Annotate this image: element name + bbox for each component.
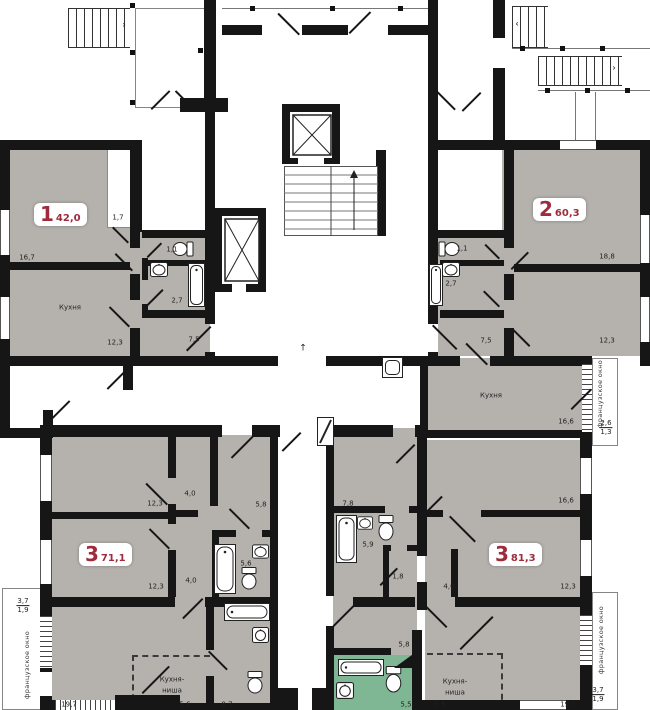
apartment-badge-1[interactable]: 1 42,0 [34, 203, 87, 226]
dim-label: 5,5 [400, 702, 411, 709]
wall [332, 104, 340, 164]
door-leaf [462, 92, 482, 112]
door-wedge-icon [392, 650, 418, 670]
marker-square [330, 6, 335, 11]
dim-label: 1,1 [456, 246, 467, 253]
room-label: ниша [445, 690, 465, 697]
wall [43, 410, 53, 438]
wall [353, 597, 415, 607]
door-leaf [436, 91, 456, 111]
dim-label: 5,6 [434, 702, 445, 709]
wall [246, 284, 266, 292]
dim-label: 1,7 [112, 215, 123, 222]
wall [222, 25, 262, 35]
stair-arrow-icon: ‹ [515, 21, 519, 30]
dim-label: 18,8 [599, 254, 615, 261]
wall [455, 597, 587, 607]
staircase-icon [284, 166, 378, 236]
elevator-shaft-icon [224, 218, 260, 282]
wall [214, 284, 232, 292]
marker-square [560, 46, 565, 51]
window [560, 140, 596, 150]
stair-arrow-icon: › [122, 22, 126, 31]
wall [333, 506, 385, 513]
french-window-label: французское окно [597, 606, 605, 674]
french-window-label: французское окно [596, 360, 604, 428]
door-leaf [282, 432, 302, 452]
walkway-line [512, 48, 650, 49]
window [580, 540, 592, 576]
wall [409, 506, 417, 513]
toilet-icon [377, 515, 395, 541]
wall [412, 700, 520, 710]
wall [115, 695, 180, 710]
bathtub-icon [336, 515, 357, 563]
apartment-number: 2 [539, 199, 553, 219]
sink-icon [150, 262, 168, 277]
marker-square [130, 3, 135, 8]
wall [130, 140, 142, 232]
walkway-line [538, 90, 650, 91]
sink-icon [357, 516, 373, 530]
duct-icon [382, 357, 403, 378]
wall [282, 158, 298, 164]
wall [333, 648, 391, 655]
wall [493, 0, 505, 38]
wall [168, 436, 176, 478]
bathtub-icon [429, 264, 443, 306]
wall [142, 310, 206, 318]
wall [417, 425, 427, 556]
window [40, 455, 52, 501]
wall [388, 25, 428, 35]
wall [427, 510, 443, 517]
sink-icon [252, 544, 269, 559]
electrical-panel-icon [317, 417, 334, 446]
marker-square [625, 88, 630, 93]
wall [52, 512, 170, 519]
marker-square [250, 6, 255, 11]
wall [212, 530, 236, 537]
dim-label: 5,6 [240, 561, 251, 568]
sink-icon [252, 627, 269, 643]
dim-label: 7,5 [480, 338, 491, 345]
wall [481, 510, 587, 517]
dim-label: 12,3 [148, 584, 164, 591]
apartment-badge-3-left[interactable]: 3 71,1 [79, 543, 132, 566]
elevator-shaft-icon [292, 114, 332, 156]
wall [205, 110, 215, 324]
room-label: Кухня [480, 393, 502, 400]
dim-label: 12,3 [560, 584, 576, 591]
window [580, 458, 592, 494]
french-window-label: французское окно [23, 631, 31, 699]
wall [302, 25, 348, 35]
balcony-area-fraction: 3,71,9 [591, 686, 604, 704]
toilet-icon [384, 666, 403, 693]
window [640, 215, 650, 263]
wall [0, 356, 10, 436]
wall [312, 688, 334, 710]
toilet-icon [240, 567, 258, 590]
window [0, 210, 10, 255]
window [0, 297, 10, 339]
wall [428, 0, 438, 150]
dim-label: 4,0 [443, 584, 454, 591]
wall [582, 356, 592, 364]
wall [142, 258, 148, 280]
apartment-number: 3 [85, 544, 99, 564]
room-label: ниша [162, 688, 182, 695]
marker-square [198, 48, 203, 53]
dim-label: 7,8 [342, 501, 353, 508]
wall [214, 208, 222, 292]
window [40, 540, 52, 584]
dim-label: 12,3 [599, 338, 615, 345]
wall [142, 230, 208, 238]
dim-label: 19,7 [560, 702, 576, 709]
bathtub-icon [224, 603, 270, 621]
wall [407, 545, 417, 551]
entry-zone-left [142, 148, 206, 232]
bathtub-icon [338, 659, 384, 676]
marker-square [545, 88, 550, 93]
marker-square [130, 100, 135, 105]
wall [504, 274, 514, 300]
wall [168, 550, 176, 597]
door-leaf [277, 13, 300, 36]
dim-label: 1,1 [166, 247, 177, 254]
dim-label: 1,8 [392, 574, 403, 581]
window [520, 700, 566, 710]
wall [130, 232, 140, 248]
entry-zone-right [438, 148, 502, 232]
apartment-number: 1 [40, 204, 54, 224]
wall [130, 328, 140, 356]
dim-label: 2,7 [445, 281, 456, 288]
wall [333, 425, 393, 437]
exterior-stairs-top-right-long [538, 56, 622, 86]
wall [204, 0, 216, 98]
wall [0, 356, 278, 366]
wall [40, 425, 222, 437]
french-window [40, 616, 52, 668]
dim-label: 16,6 [558, 498, 574, 505]
wall [210, 436, 218, 506]
marker-square [520, 46, 525, 51]
bathtub-icon [188, 263, 205, 307]
dim-label: 5,8 [398, 642, 409, 649]
toilet-icon [246, 671, 264, 694]
dim-label: 16,7 [19, 255, 35, 262]
dim-label: 4,0 [185, 578, 196, 585]
wall [206, 607, 214, 650]
dim-label: 5,8 [255, 502, 266, 509]
wall [130, 274, 140, 300]
wall [40, 700, 55, 710]
balcony-area-fraction: 3,71,9 [16, 597, 29, 615]
sink-icon [442, 262, 460, 277]
apartment-area: 81,3 [511, 553, 536, 564]
room-label: Кухня- [160, 677, 185, 684]
balcony-door-opening [40, 672, 52, 696]
marker-square [585, 88, 590, 93]
dim-label: 2,7 [171, 298, 182, 305]
dim-label: 7,5 [188, 337, 199, 344]
room-label: Кухня- [443, 679, 468, 686]
wall [52, 597, 175, 607]
door-leaf [51, 400, 71, 420]
wall [420, 430, 592, 438]
dim-label: 5,9 [362, 542, 373, 549]
wall [504, 140, 514, 232]
dim-label: 16,6 [558, 419, 574, 426]
wall [270, 425, 278, 710]
stair-arrow-icon: › [612, 65, 616, 74]
floor-plan: › ‹ › ↑ [0, 0, 650, 710]
sink-icon [336, 682, 354, 699]
apartment-badge-2[interactable]: 2 60,3 [533, 198, 586, 221]
wall [428, 140, 650, 150]
wall [270, 688, 298, 710]
dim-label: 12,3 [147, 501, 163, 508]
wall [282, 104, 290, 164]
wall [504, 328, 514, 356]
marker-square [398, 6, 403, 11]
wall [420, 366, 428, 430]
window [640, 297, 650, 342]
wall [262, 530, 278, 537]
dim-label: 4,0 [184, 491, 195, 498]
room-label: Кухня [59, 305, 81, 312]
direction-arrow-icon: ↑ [299, 345, 307, 354]
vestibule-outline [135, 8, 205, 108]
wall [324, 158, 340, 164]
dim-label: 12,3 [107, 340, 123, 347]
french-window [580, 615, 592, 665]
wall [438, 230, 508, 238]
wall [490, 356, 584, 366]
exterior-stairs-top-left [68, 8, 130, 48]
wall [8, 262, 130, 270]
wall [493, 68, 505, 142]
wall [176, 510, 198, 517]
wall [514, 264, 642, 272]
marker-square [130, 50, 135, 55]
dim-label: 8,7 [221, 702, 232, 709]
apartment-number: 3 [495, 544, 509, 564]
dim-label: 19,7 [61, 702, 77, 709]
wall [440, 310, 504, 318]
bathtub-icon [214, 544, 236, 594]
apartment-area: 42,0 [56, 213, 81, 224]
apartment-badge-3-right[interactable]: 3 81,3 [489, 543, 542, 566]
wall [412, 630, 422, 710]
wall [0, 140, 135, 150]
door-leaf [349, 11, 372, 34]
marker-square [600, 46, 605, 51]
apartment-area: 60,3 [555, 208, 580, 219]
dim-label: 5,6 [179, 702, 190, 709]
apartment-area: 71,1 [101, 553, 126, 564]
